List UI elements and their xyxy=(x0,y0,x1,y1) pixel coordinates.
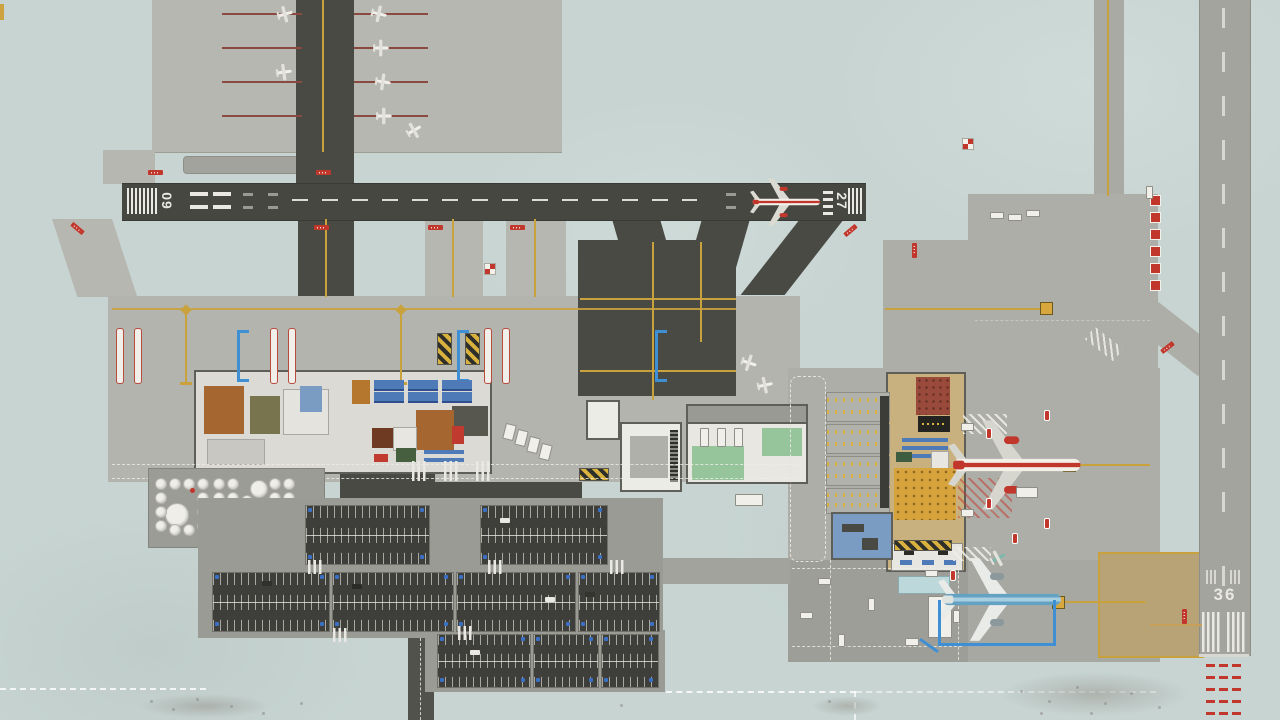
terminal2-foodcourt[interactable] xyxy=(894,468,956,520)
service-road-line xyxy=(792,646,962,647)
runway-marking xyxy=(1230,570,1241,584)
dirt-speckle xyxy=(828,700,831,703)
taxi-line xyxy=(322,0,324,152)
service-vehicle[interactable] xyxy=(905,638,919,646)
taxiway-connector xyxy=(296,150,354,184)
dirt-patch xyxy=(812,696,882,716)
service-road-line xyxy=(975,320,1150,321)
stand-edge-marker xyxy=(116,328,124,384)
crosswalk xyxy=(333,628,349,642)
fuel-tank[interactable] xyxy=(169,524,181,536)
checkin-desk[interactable] xyxy=(442,380,472,391)
safety-cone-marker xyxy=(986,498,992,509)
edge-mark-yellow xyxy=(0,4,4,20)
dirt-speckle xyxy=(230,705,233,708)
parked-car[interactable] xyxy=(352,584,362,589)
runway-marking xyxy=(213,205,231,209)
stand-guide-blue xyxy=(655,330,667,333)
runway-marking xyxy=(268,206,278,209)
fuel-tank[interactable] xyxy=(155,520,167,532)
service-vehicle[interactable] xyxy=(990,212,1004,219)
dirt-speckle xyxy=(150,700,153,703)
stand-edge-marker xyxy=(502,328,510,384)
ga-apron[interactable] xyxy=(152,0,562,153)
runway-marking xyxy=(726,206,736,209)
handicap-spot-marker xyxy=(308,555,312,559)
ga-taxiway-strip xyxy=(296,0,354,152)
fuel-tank[interactable] xyxy=(283,478,295,490)
checkin-desk[interactable] xyxy=(408,380,438,391)
airliner-at-remote-stand[interactable] xyxy=(938,552,1068,647)
service-vehicle[interactable] xyxy=(735,494,763,506)
terminal-kiosk[interactable] xyxy=(374,454,388,462)
taxi-sign-board xyxy=(1040,302,1053,315)
hold-short-sign xyxy=(843,224,858,237)
parking-lot-block[interactable] xyxy=(305,505,430,565)
runway-marking xyxy=(243,206,253,209)
crosswalk xyxy=(488,560,504,574)
handicap-spot-marker xyxy=(308,508,312,512)
handicap-spot-marker xyxy=(483,555,487,559)
runway-marking xyxy=(726,193,736,196)
fuel-tank[interactable] xyxy=(250,480,268,498)
approach-light-bar xyxy=(1219,700,1228,703)
handicap-spot-marker xyxy=(420,508,424,512)
handicap-spot-marker xyxy=(521,678,525,682)
taxiway-connector xyxy=(506,219,566,297)
checkin-desk[interactable] xyxy=(374,392,404,403)
crosswalk xyxy=(412,461,426,481)
hazard-strip xyxy=(894,540,952,551)
handicap-spot-marker xyxy=(320,575,324,579)
crosswalk xyxy=(308,560,324,574)
runway-27-number: 27 xyxy=(835,192,849,210)
depot-van[interactable] xyxy=(717,428,726,447)
runway-centerline xyxy=(292,199,697,201)
handicap-spot-marker xyxy=(444,622,448,626)
hazard-strip xyxy=(437,333,452,365)
fuel-tank[interactable] xyxy=(155,492,167,504)
runway-marking xyxy=(1222,566,1225,586)
ground-power-unit[interactable] xyxy=(961,509,974,517)
service-vehicle[interactable] xyxy=(838,634,845,647)
crosswalk xyxy=(458,626,474,640)
ga-stand-line xyxy=(222,47,302,49)
runway-threshold-36 xyxy=(1227,612,1246,652)
approach-light-bar xyxy=(1232,712,1241,715)
lounge-furniture xyxy=(842,524,864,532)
service-vehicle[interactable] xyxy=(818,578,831,585)
parked-car[interactable] xyxy=(262,581,272,586)
taxi-line xyxy=(580,370,736,372)
approach-light-bar xyxy=(1219,688,1228,691)
approach-light-bar xyxy=(1206,700,1215,703)
baggage-courtyard xyxy=(630,436,668,478)
checkin-desk[interactable] xyxy=(374,380,404,391)
ga-prop-plane-white[interactable] xyxy=(374,72,393,92)
taxiway-connector xyxy=(741,219,844,295)
lounge-furniture xyxy=(862,538,878,550)
stand-lead-line xyxy=(1062,601,1146,603)
fuel-tank[interactable] xyxy=(197,478,209,490)
terminal-room-shop[interactable] xyxy=(204,386,244,434)
garage-wall xyxy=(880,396,889,508)
terminal-kiosk[interactable] xyxy=(452,426,464,444)
terminal2-sign-strip xyxy=(918,416,950,432)
runway-end-line xyxy=(1199,654,1249,657)
service-vehicle[interactable] xyxy=(1008,214,1022,221)
fuel-tank[interactable] xyxy=(227,478,239,490)
apron-edge-checker xyxy=(1150,280,1161,291)
taxiway-connector xyxy=(103,150,155,184)
depot-van[interactable] xyxy=(734,428,743,447)
handicap-spot-marker xyxy=(566,622,570,626)
safety-cone-marker xyxy=(1044,518,1050,529)
stand-guide-blue xyxy=(655,330,658,382)
gate-desk[interactable] xyxy=(922,560,934,565)
terminal2-room-restaurant[interactable] xyxy=(916,377,950,415)
approach-light-bar xyxy=(1219,712,1228,715)
north-taxiway xyxy=(1094,0,1124,196)
dirt-patch xyxy=(1000,672,1190,716)
terminal-seating xyxy=(424,446,464,462)
dirt-speckle xyxy=(172,708,175,711)
apron-edge-checker xyxy=(1150,212,1161,223)
road-centerline xyxy=(420,638,421,720)
handicap-spot-marker xyxy=(440,678,444,682)
dirt-speckle xyxy=(1104,702,1107,705)
hold-short-sign xyxy=(1182,609,1187,624)
terminal-room[interactable] xyxy=(300,386,322,412)
runway-centerline xyxy=(1222,8,1225,528)
handicap-spot-marker xyxy=(536,637,540,641)
parking-lot-block[interactable] xyxy=(578,572,660,632)
handicap-spot-marker xyxy=(581,622,585,626)
airport-map[interactable]: 09 27 36 xyxy=(0,0,1280,720)
handicap-spot-marker xyxy=(320,622,324,626)
ga-prop-plane-white[interactable] xyxy=(755,374,775,395)
handicap-spot-marker xyxy=(420,555,424,559)
handicap-spot-marker xyxy=(335,622,339,626)
runway-marking xyxy=(1206,570,1217,584)
runway-marking xyxy=(213,192,231,196)
runway-36-number: 36 xyxy=(1211,586,1239,603)
stand-service-line xyxy=(1053,600,1056,646)
terminal-room-shop[interactable] xyxy=(416,410,454,450)
parking-lot-block[interactable] xyxy=(332,572,454,632)
stand-lead-line xyxy=(185,310,187,384)
runway-09-number: 09 xyxy=(160,192,174,210)
handicap-spot-marker xyxy=(459,575,463,579)
stand-guide-blue xyxy=(237,330,240,382)
dirt-speckle xyxy=(1048,700,1051,703)
parking-access-road xyxy=(658,558,790,584)
taxi-line xyxy=(534,219,536,297)
handicap-spot-marker xyxy=(215,622,219,626)
approach-light-bar xyxy=(1232,700,1241,703)
runway-threshold-27 xyxy=(848,188,864,214)
runway-marking xyxy=(823,212,833,215)
taxi-line xyxy=(580,298,736,300)
stand-lead-line xyxy=(400,310,402,384)
safety-cone-marker xyxy=(1012,533,1018,544)
stand-guide-blue xyxy=(655,379,667,382)
ga-stand-line xyxy=(222,81,302,83)
dirt-speckle xyxy=(300,702,303,705)
lounge-room-blue[interactable] xyxy=(833,514,891,558)
safety-cone-marker xyxy=(1044,410,1050,421)
stand-guide-blue xyxy=(457,330,460,382)
checkerboard-marker xyxy=(962,138,974,150)
dirt-speckle xyxy=(1090,712,1093,715)
parking-lot-block[interactable] xyxy=(437,634,531,688)
property-boundary xyxy=(0,688,206,690)
approach-light-bar xyxy=(1206,664,1215,667)
handicap-spot-marker xyxy=(444,575,448,579)
apron-edge-checker xyxy=(1150,246,1161,257)
terminal2-room-plants[interactable] xyxy=(896,452,912,462)
approach-light-bar xyxy=(1206,676,1215,679)
handicap-spot-marker xyxy=(335,575,339,579)
apron-taxilane xyxy=(112,308,736,310)
runway-36-entry-pad xyxy=(1098,552,1204,658)
ground-power-unit[interactable] xyxy=(1016,487,1038,498)
ga-prop-plane-white[interactable] xyxy=(376,107,393,125)
handicap-spot-marker xyxy=(521,637,525,641)
fuel-tank[interactable] xyxy=(183,524,195,536)
taxi-line xyxy=(700,242,702,342)
parking-garage-loop xyxy=(790,376,826,562)
terminal-room-plants[interactable] xyxy=(396,448,416,462)
service-road-line xyxy=(792,568,962,569)
runway-marking xyxy=(190,205,208,209)
safety-cone-marker xyxy=(986,428,992,439)
hangar-strip[interactable] xyxy=(183,156,311,174)
handicap-spot-marker xyxy=(650,622,654,626)
fuel-tank[interactable] xyxy=(169,478,181,490)
handicap-spot-marker xyxy=(598,508,602,512)
handicap-spot-marker xyxy=(604,637,608,641)
hazard-strip xyxy=(579,468,609,481)
handicap-spot-marker xyxy=(440,637,444,641)
parked-car[interactable] xyxy=(545,597,555,602)
hold-short-sign xyxy=(148,170,163,175)
handicap-spot-marker xyxy=(589,637,593,641)
ga-stand-line xyxy=(354,47,428,49)
dirt-speckle xyxy=(1076,686,1079,689)
terminal-room-cafe[interactable] xyxy=(372,428,394,448)
approach-light-bar xyxy=(1232,688,1241,691)
service-road-line xyxy=(830,560,831,660)
ga-stand-line xyxy=(354,13,428,15)
runway-marking xyxy=(243,193,253,196)
runway-marking xyxy=(268,193,278,196)
terminal-room-staff[interactable] xyxy=(250,396,280,434)
stand-guide-blue xyxy=(237,330,249,333)
stand-service-line xyxy=(938,600,941,646)
service-vehicle[interactable] xyxy=(953,610,960,623)
terminal-room-shop[interactable] xyxy=(352,380,370,404)
taxi-line xyxy=(652,242,654,400)
ga-stand-line xyxy=(222,115,302,117)
stand-service-line xyxy=(938,643,1056,646)
service-vehicle[interactable] xyxy=(868,598,875,611)
service-vehicle[interactable] xyxy=(1026,210,1040,217)
approach-light-bar xyxy=(1232,664,1241,667)
runway-marking xyxy=(823,205,833,208)
gate-desk[interactable] xyxy=(900,560,912,565)
stand-guide-blue xyxy=(457,330,469,333)
taxi-line xyxy=(325,219,327,297)
safety-cone-marker xyxy=(950,570,956,581)
handicap-spot-marker xyxy=(649,678,653,682)
handicap-spot-marker xyxy=(650,575,654,579)
fuel-tank[interactable] xyxy=(155,506,167,518)
runway-threshold-09 xyxy=(127,188,157,214)
taxi-line xyxy=(1107,0,1109,196)
dirt-speckle xyxy=(1158,706,1161,709)
handicap-spot-marker xyxy=(483,508,487,512)
fuel-tank[interactable] xyxy=(213,478,225,490)
depot-green-floor xyxy=(692,446,744,480)
stand-edge-marker xyxy=(134,328,142,384)
handicap-spot-marker xyxy=(604,678,608,682)
airliner-on-runway-27[interactable] xyxy=(750,175,824,229)
taxi-line xyxy=(885,308,1045,310)
apron-edge-checker xyxy=(1150,263,1161,274)
service-vehicle[interactable] xyxy=(1146,186,1153,199)
taxiway-connector xyxy=(52,219,137,297)
stand-lead-tbar xyxy=(180,382,192,385)
hold-short-sign xyxy=(428,225,443,230)
service-vehicle[interactable] xyxy=(925,570,938,577)
runway-marking xyxy=(823,191,833,194)
runway-marking xyxy=(190,192,208,196)
dirt-patch xyxy=(140,694,270,718)
stand-edge-marker xyxy=(288,328,296,384)
parked-car[interactable] xyxy=(585,592,595,597)
handicap-spot-marker xyxy=(536,678,540,682)
hold-short-sign xyxy=(316,170,331,175)
annex-building[interactable] xyxy=(588,402,618,438)
service-vehicle[interactable] xyxy=(800,612,813,619)
handicap-spot-marker xyxy=(581,575,585,579)
runway-marking xyxy=(823,198,833,201)
holdline-yellow xyxy=(1150,624,1202,626)
dirt-speckle xyxy=(620,704,623,707)
runway-18-36[interactable] xyxy=(1199,0,1251,656)
terminal-room[interactable] xyxy=(208,440,264,464)
dirt-speckle xyxy=(196,698,199,701)
dirt-speckle xyxy=(1130,692,1133,695)
terminal-room[interactable] xyxy=(394,428,416,450)
approach-light-bar xyxy=(1206,688,1215,691)
fuel-tank[interactable] xyxy=(269,478,281,490)
baggage-belt xyxy=(670,430,678,482)
hold-short-sign xyxy=(510,225,525,230)
ground-power-unit[interactable] xyxy=(961,423,974,431)
approach-light-bar xyxy=(1219,664,1228,667)
ga-prop-plane-white[interactable] xyxy=(373,39,390,57)
crosswalk xyxy=(444,461,458,481)
depot-van[interactable] xyxy=(700,428,709,447)
property-boundary xyxy=(666,691,856,693)
apron-edge-checker xyxy=(1150,229,1161,240)
stand-guide-blue xyxy=(237,379,249,382)
hold-short-sign xyxy=(912,243,917,258)
handicap-spot-marker xyxy=(598,555,602,559)
stand-edge-marker xyxy=(270,328,278,384)
parking-lot-block[interactable] xyxy=(456,572,576,632)
hold-short-sign xyxy=(314,225,329,230)
checkin-desk[interactable] xyxy=(408,392,438,403)
handicap-spot-marker xyxy=(215,575,219,579)
crosswalk xyxy=(610,560,626,574)
dirt-speckle xyxy=(262,712,265,715)
approach-light-bar xyxy=(1206,712,1215,715)
hazard-strip xyxy=(465,333,480,365)
taxiway-connector xyxy=(425,219,483,297)
dirt-speckle xyxy=(1040,712,1043,715)
approach-light-bar xyxy=(1219,676,1228,679)
approach-light-bar xyxy=(1232,676,1241,679)
taxiway-connector xyxy=(684,219,750,281)
runway-threshold-36 xyxy=(1202,612,1221,652)
taxi-line xyxy=(452,219,454,297)
handicap-spot-marker xyxy=(649,637,653,641)
checkin-desk[interactable] xyxy=(442,392,472,403)
parked-car[interactable] xyxy=(470,650,480,655)
vehicle-depot-roof[interactable] xyxy=(688,406,806,424)
parked-car[interactable] xyxy=(500,518,510,523)
fuel-valve xyxy=(190,488,195,493)
crosswalk xyxy=(476,461,490,481)
fuel-tank[interactable] xyxy=(155,478,167,490)
parking-lot-block[interactable] xyxy=(480,505,608,565)
ga-prop-plane-white[interactable] xyxy=(275,62,294,82)
dirt-speckle xyxy=(1020,690,1023,693)
checkerboard-marker xyxy=(484,263,496,275)
handicap-spot-marker xyxy=(589,678,593,682)
stand-edge-marker xyxy=(484,328,492,384)
handicap-spot-marker xyxy=(566,575,570,579)
